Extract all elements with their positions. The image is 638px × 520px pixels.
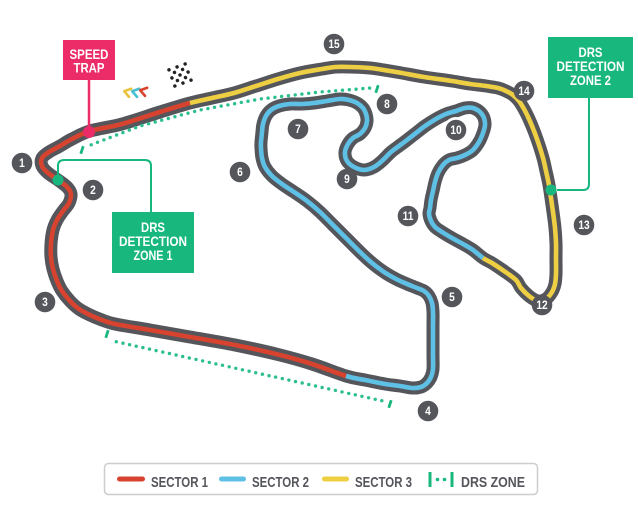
svg-text:3: 3 bbox=[42, 297, 48, 310]
svg-text:SECTOR 3: SECTOR 3 bbox=[355, 474, 412, 491]
svg-text:DRS ZONE: DRS ZONE bbox=[461, 474, 525, 491]
svg-text:12: 12 bbox=[536, 300, 547, 313]
svg-text:5: 5 bbox=[449, 292, 455, 305]
svg-text:15: 15 bbox=[328, 39, 339, 52]
svg-text:10: 10 bbox=[450, 125, 461, 138]
svg-text:ZONE 1: ZONE 1 bbox=[134, 247, 173, 263]
svg-text:6: 6 bbox=[237, 167, 243, 180]
svg-text:11: 11 bbox=[403, 211, 414, 224]
svg-text:SECTOR 1: SECTOR 1 bbox=[151, 474, 208, 491]
svg-text:13: 13 bbox=[578, 220, 589, 233]
svg-text:TRAP: TRAP bbox=[74, 61, 105, 76]
svg-text:4: 4 bbox=[425, 406, 431, 419]
svg-text:9: 9 bbox=[344, 174, 350, 187]
svg-text:SECTOR 2: SECTOR 2 bbox=[252, 474, 309, 491]
svg-text:7: 7 bbox=[295, 124, 301, 137]
svg-text:2: 2 bbox=[90, 185, 96, 198]
svg-text:ZONE 2: ZONE 2 bbox=[570, 72, 611, 88]
svg-text:14: 14 bbox=[518, 86, 530, 99]
svg-text:1: 1 bbox=[19, 158, 25, 171]
svg-text:8: 8 bbox=[384, 99, 390, 112]
